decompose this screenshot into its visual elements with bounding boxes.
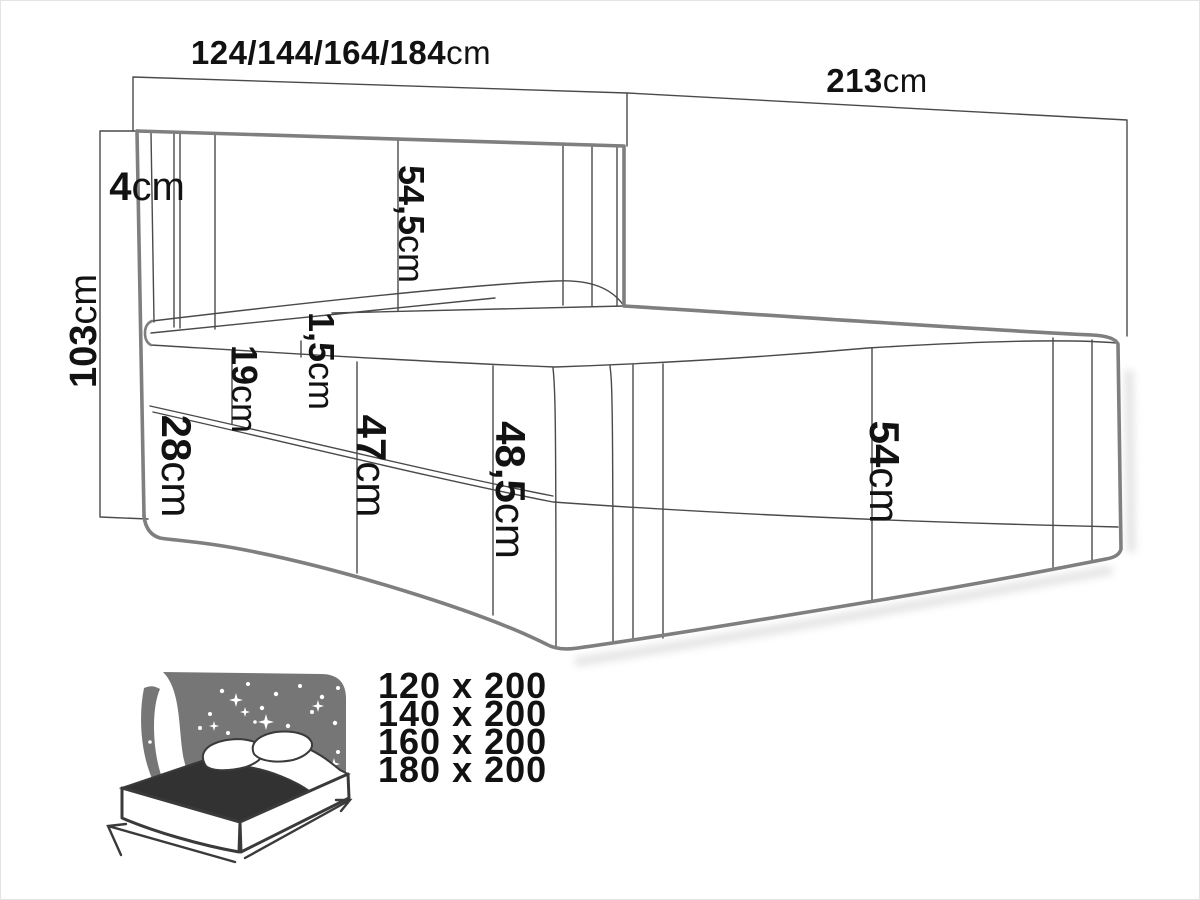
dim-foot-height-label: 54cm <box>862 421 909 524</box>
headboard-inner-left-edge <box>151 132 154 322</box>
shadow-bottom <box>575 570 1112 662</box>
dim-length-line <box>627 93 1127 336</box>
bed-shadow <box>575 370 1131 662</box>
dim-mattress-height-label: 19cm <box>225 345 266 433</box>
bed-dimension-diagram-page: 124/144/164/184cm 213cm 103cm 4cm 54,5cm… <box>0 0 1200 900</box>
dim-side-height-label: 47cm <box>349 415 396 518</box>
dim-height-label: 103cm <box>63 274 105 388</box>
mattress-front-edge <box>151 341 1117 367</box>
base-top-edge-lower <box>153 412 1118 527</box>
dim-length-label: 213cm <box>826 62 928 99</box>
dim-side-total-height-label: 48,5cm <box>488 421 535 559</box>
dim-width-line <box>133 77 627 146</box>
dim-topper-height-label: 1,5cm <box>302 312 343 410</box>
dim-base-height-label: 28cm <box>154 415 201 518</box>
diagram-svg: 124/144/164/184cm 213cm 103cm 4cm 54,5cm… <box>0 0 1200 900</box>
bed-outline <box>137 131 1121 649</box>
size-variants-list: 120 x 200 140 x 200 160 x 200 180 x 200 <box>378 665 547 790</box>
size-option-4: 180 x 200 <box>378 749 547 790</box>
headboard-top-right-outline <box>137 131 624 306</box>
dimension-labels: 124/144/164/184cm 213cm 103cm 4cm 54,5cm… <box>63 34 928 559</box>
bed-night-icon <box>108 672 350 862</box>
dim-headboard-thickness-label: 4cm <box>109 165 185 209</box>
bed-seam-lines <box>150 132 1118 646</box>
dim-width-label: 124/144/164/184cm <box>191 34 491 71</box>
mattress-top-edge <box>152 281 624 321</box>
foot-corner-post-seam-2 <box>610 366 613 643</box>
foot-corner-post-seam-1 <box>553 368 556 646</box>
dim-headboard-height-label: 54,5cm <box>392 165 433 283</box>
shadow-right <box>1129 370 1131 552</box>
